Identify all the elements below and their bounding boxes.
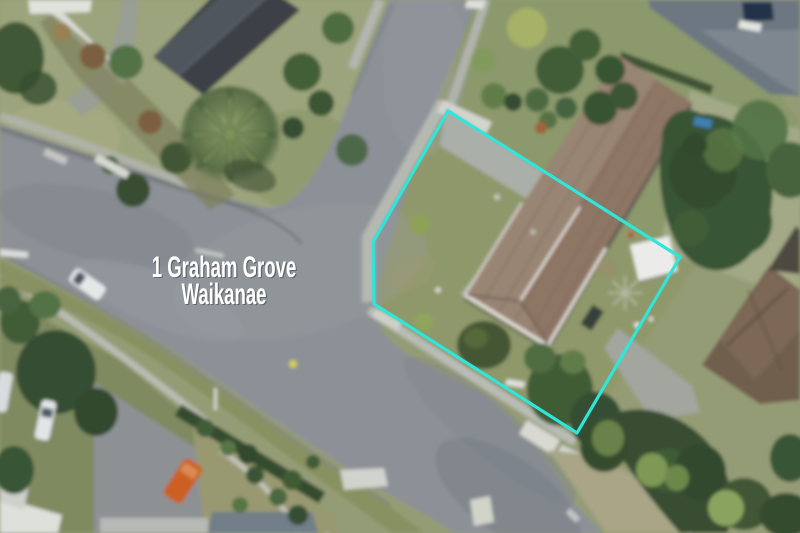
svg-text:Waikanae: Waikanae	[181, 278, 266, 312]
